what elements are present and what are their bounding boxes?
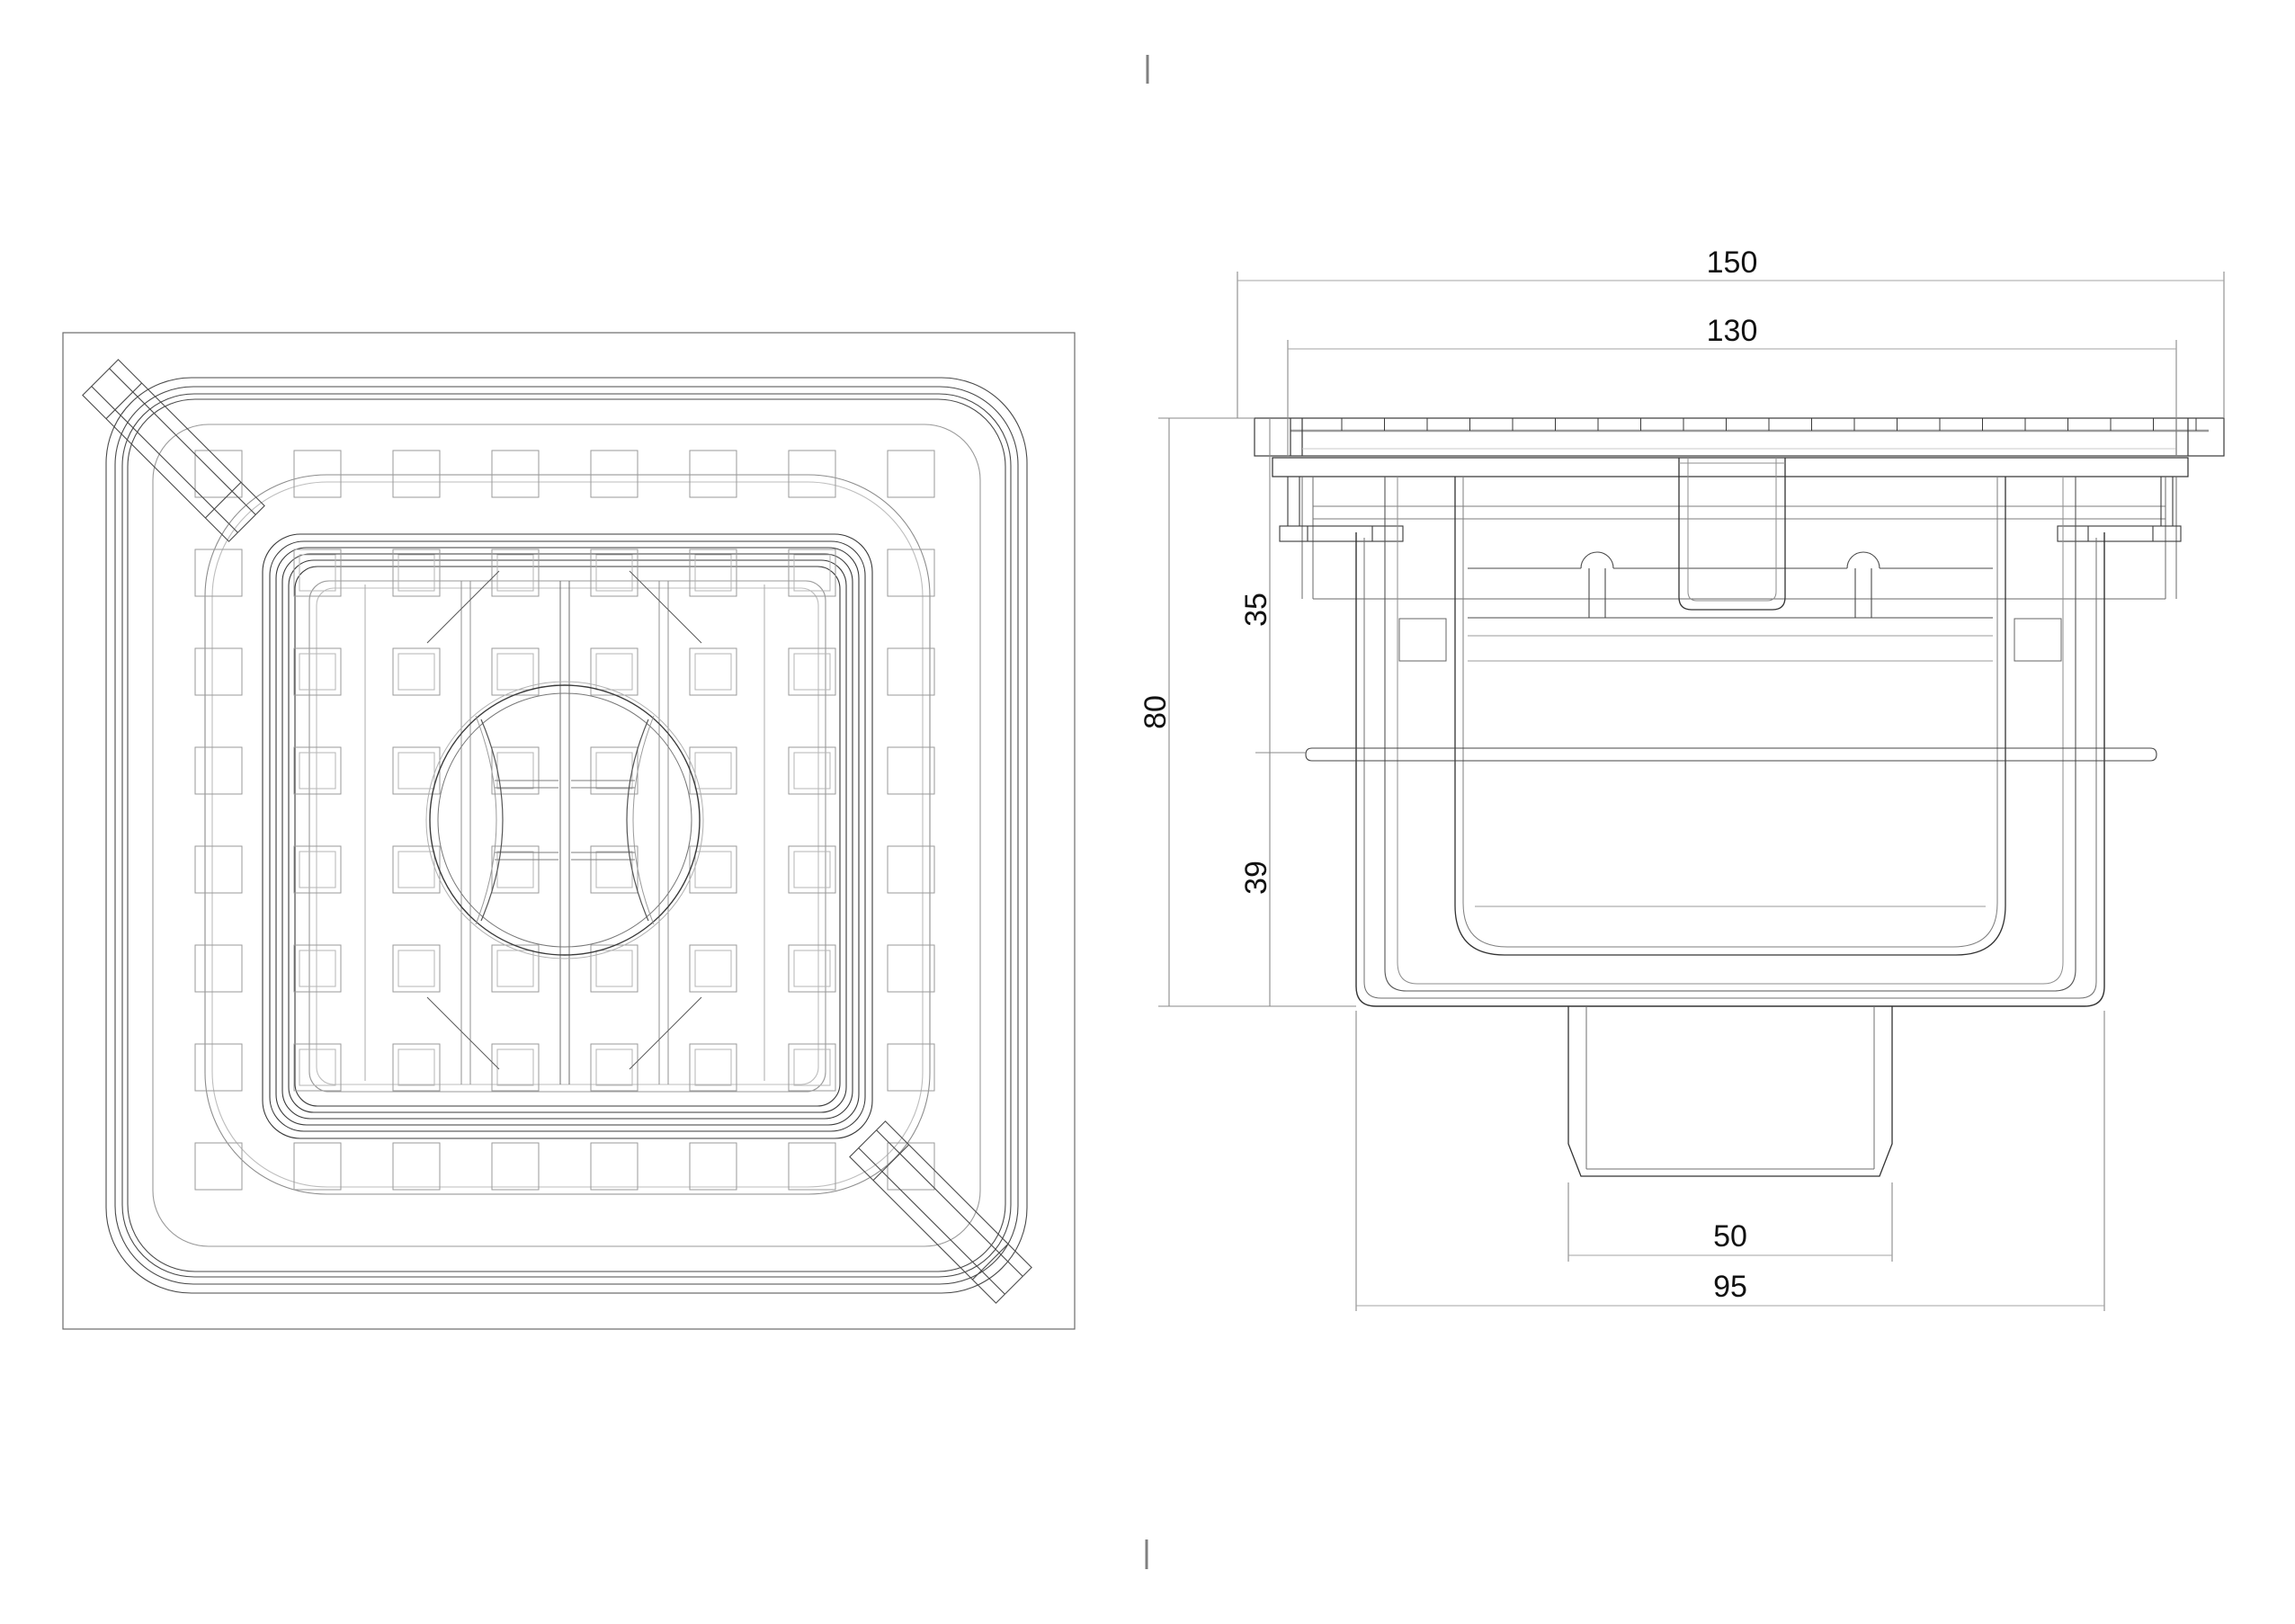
section-clamp-block-left: [1399, 619, 1446, 661]
plan-center-slot-lines: [495, 781, 635, 860]
registration-mark-bottom: [1146, 1539, 1148, 1569]
section-dimensions: 150 130 80 35 39 50: [1139, 245, 2224, 1311]
section-bucket-shelves: [1468, 568, 1993, 618]
section-flange: [1255, 418, 2224, 456]
plan-corner-diagonals: [427, 571, 701, 1069]
plan-outlet-circle: [426, 682, 703, 959]
registration-mark-top: [1147, 55, 1149, 84]
dim-body-width: 95: [1356, 1011, 2104, 1311]
dim-body-width-label: 95: [1713, 1270, 1747, 1304]
section-center-boss: [1679, 458, 1785, 610]
section-clamp-block-right: [2014, 619, 2061, 661]
drawing-sheet: 150 130 80 35 39 50: [0, 0, 2295, 1624]
dim-overall-width-label: 150: [1707, 245, 1758, 280]
plan-internal-ribs: [365, 581, 764, 1084]
section-clips: [1280, 477, 2181, 541]
section-outlet-pipe: [1568, 1006, 1892, 1176]
plan-flange-rings: [106, 378, 1027, 1293]
plan-view: [63, 333, 1075, 1329]
section-flange-slot-ticks: [1342, 418, 2196, 431]
section-grate: [1273, 458, 2188, 599]
dim-overall-height-label: 80: [1139, 695, 1173, 729]
dim-upper-height-label: 35: [1239, 593, 1273, 627]
dim-outlet-width: 50: [1568, 1182, 1892, 1262]
plan-corner-tab-bottom-right: [850, 1121, 1031, 1303]
section-bucket-posts: [1581, 552, 1880, 618]
section-grate-skirt: [1302, 477, 2176, 599]
plan-funnel-arc-left: [481, 719, 503, 921]
section-body: [1356, 477, 2104, 1006]
section-membrane-flange: [1306, 748, 2157, 761]
plan-grate-frame: [263, 534, 872, 1138]
plan-funnel-arc-right: [627, 719, 648, 921]
section-bucket: [1399, 458, 2061, 955]
section-view: 150 130 80 35 39 50: [1139, 245, 2224, 1311]
dim-grate-width: 130: [1288, 314, 2176, 458]
dim-grate-width-label: 130: [1707, 314, 1758, 348]
dim-upper-height: 35 39: [1239, 418, 1306, 1006]
dim-outlet-width-label: 50: [1713, 1219, 1747, 1254]
dim-lower-height-label: 39: [1239, 861, 1273, 895]
plan-hole-grid-inner: [299, 555, 830, 1085]
cad-drawing: 150 130 80 35 39 50: [0, 0, 2295, 1624]
